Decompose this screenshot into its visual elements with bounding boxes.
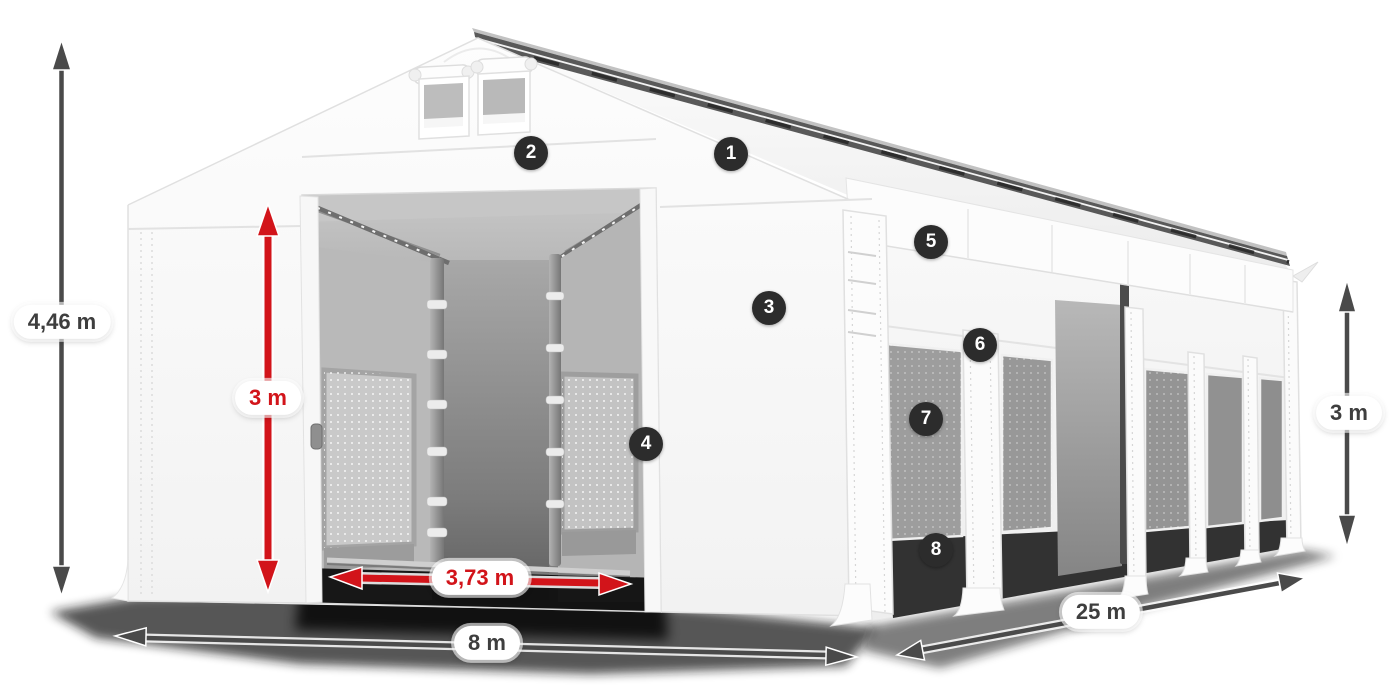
dimension-label-side-length: 25 m (1062, 595, 1140, 629)
gable-vent-left (409, 64, 474, 139)
front-doorway-interior (295, 180, 670, 620)
callout-marker-2: 2 (514, 136, 548, 170)
mesh-window (562, 374, 636, 532)
callout-marker-1: 1 (714, 137, 748, 171)
dimension-label-inner-height: 3 m (235, 381, 301, 415)
inner-door-right (546, 200, 656, 602)
callout-marker-4: 4 (629, 427, 663, 461)
callout-marker-7: 7 (909, 402, 943, 436)
dimension-label-door-width: 3,73 m (432, 561, 529, 595)
wall-skirt-left (112, 560, 128, 601)
callout-marker-6: 6 (963, 328, 997, 362)
tent-illustration (0, 0, 1400, 700)
interior-center-gap (444, 260, 549, 600)
door-handle (311, 424, 322, 449)
mesh-window (324, 370, 414, 548)
inner-door-left (316, 247, 447, 603)
dimension-label-total-height: 4,46 m (14, 305, 111, 339)
dimension-label-side-height: 3 m (1316, 396, 1382, 430)
gable-vent-right (471, 56, 537, 135)
tent-dimension-diagram: 4,46 m 3 m 3,73 m 8 m 25 m 3 m 1 2 3 4 5… (0, 0, 1400, 700)
callout-marker-5: 5 (914, 225, 948, 259)
dimension-label-front-width: 8 m (454, 626, 520, 660)
callout-marker-8: 8 (919, 533, 953, 567)
far-gable-tip (1293, 262, 1318, 282)
callout-marker-3: 3 (752, 291, 786, 325)
